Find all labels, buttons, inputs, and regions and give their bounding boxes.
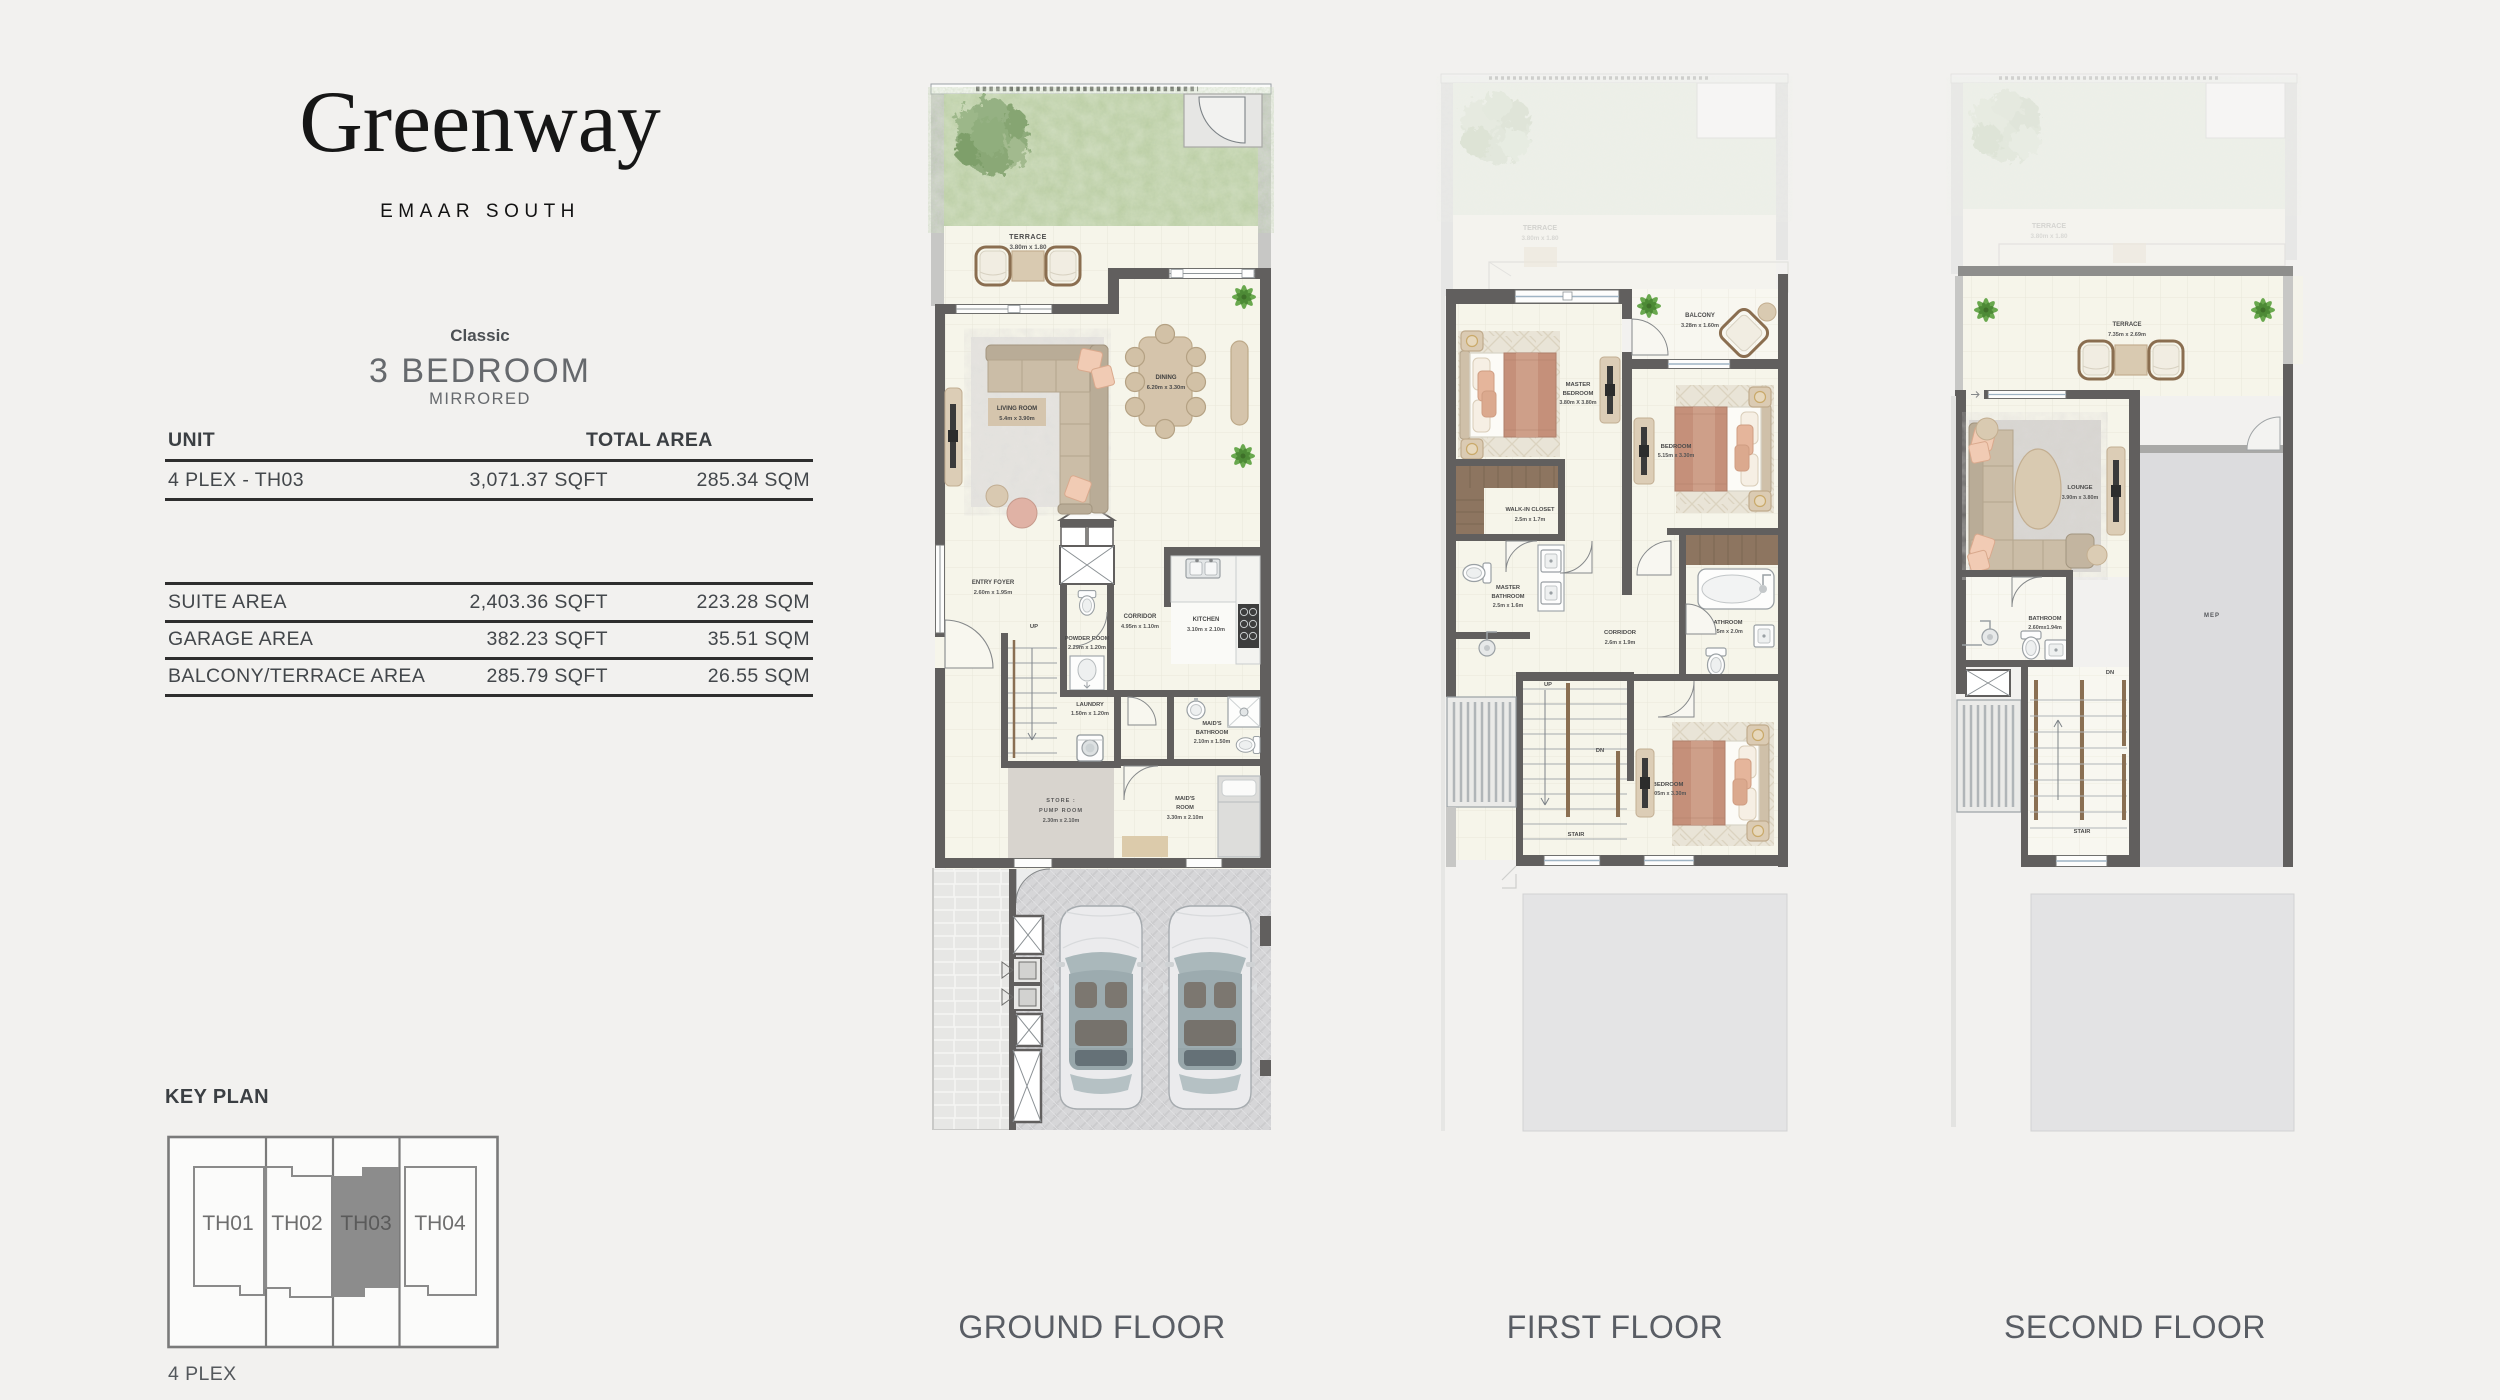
svg-text:STORE :: STORE : <box>1046 798 1076 804</box>
svg-text:3.28m x 1.60m: 3.28m x 1.60m <box>1681 323 1719 329</box>
svg-text:DINING: DINING <box>1156 375 1177 381</box>
svg-text:3.90m x 3.80m: 3.90m x 3.80m <box>2062 495 2099 501</box>
svg-text:CORRIDOR: CORRIDOR <box>1604 630 1637 636</box>
svg-text:TH01: TH01 <box>202 1212 253 1235</box>
svg-text:ROOM: ROOM <box>1176 805 1194 811</box>
svg-text:TERRACE: TERRACE <box>1523 224 1558 232</box>
svg-text:BATHROOM: BATHROOM <box>2028 616 2061 622</box>
svg-text:3.30m x 2.10m: 3.30m x 2.10m <box>1167 815 1204 821</box>
svg-text:STAIR: STAIR <box>2074 829 2091 835</box>
svg-text:MAID'S: MAID'S <box>1202 721 1222 727</box>
svg-text:BATHROOM: BATHROOM <box>1491 594 1524 600</box>
svg-text:BATHROOM: BATHROOM <box>1196 730 1229 736</box>
svg-text:MEP: MEP <box>2204 613 2220 619</box>
svg-text:TERRACE: TERRACE <box>2112 322 2141 328</box>
svg-text:POWDER ROOM: POWDER ROOM <box>1065 636 1110 642</box>
svg-text:BALCONY: BALCONY <box>1685 313 1715 319</box>
svg-text:1.50m x 1.20m: 1.50m x 1.20m <box>1071 711 1109 717</box>
svg-text:DN: DN <box>1596 748 1604 754</box>
svg-text:BEDROOM: BEDROOM <box>1661 444 1692 450</box>
svg-text:BEDROOM: BEDROOM <box>1653 782 1684 788</box>
svg-text:TERRACE: TERRACE <box>1009 233 1047 241</box>
svg-text:2.6m x 1.9m: 2.6m x 1.9m <box>1605 640 1636 646</box>
svg-text:UP: UP <box>1544 682 1552 688</box>
svg-text:3.80m x 1.80: 3.80m x 1.80 <box>1521 235 1559 242</box>
svg-text:2.5m x 1.7m: 2.5m x 1.7m <box>1515 517 1546 523</box>
svg-text:MAID'S: MAID'S <box>1175 796 1195 802</box>
svg-text:KITCHEN: KITCHEN <box>1193 617 1220 623</box>
svg-text:3.80m x 1.80: 3.80m x 1.80 <box>2030 233 2068 240</box>
svg-text:2.5m x 1.6m: 2.5m x 1.6m <box>1493 603 1524 609</box>
svg-text:PUMP ROOM: PUMP ROOM <box>1039 808 1083 814</box>
svg-text:2.60m x 1.95m: 2.60m x 1.95m <box>974 590 1013 596</box>
svg-text:CORRIDOR: CORRIDOR <box>1124 614 1157 620</box>
svg-text:2.30m x 2.10m: 2.30m x 2.10m <box>1043 818 1080 824</box>
svg-text:TERRACE: TERRACE <box>2032 222 2067 230</box>
svg-text:5.4m x 3.90m: 5.4m x 3.90m <box>999 416 1034 422</box>
svg-text:UP: UP <box>1030 624 1038 630</box>
svg-text:2.10m x 1.50m: 2.10m x 1.50m <box>1194 739 1231 745</box>
svg-text:TH03: TH03 <box>340 1212 391 1235</box>
svg-text:LAUNDRY: LAUNDRY <box>1076 702 1104 708</box>
svg-text:7.35m x 2.69m: 7.35m x 2.69m <box>2108 332 2146 338</box>
svg-text:4.95m x 1.10m: 4.95m x 1.10m <box>1121 624 1159 630</box>
svg-text:BEDROOM: BEDROOM <box>1563 391 1594 397</box>
svg-text:MASTER: MASTER <box>1566 382 1592 388</box>
svg-text:4.05m x 3.30m: 4.05m x 3.30m <box>1650 791 1687 797</box>
svg-text:DN: DN <box>2106 670 2114 676</box>
svg-text:3.80m X 3.80m: 3.80m X 3.80m <box>1559 400 1596 406</box>
svg-text:MASTER: MASTER <box>1496 585 1520 591</box>
svg-text:TH02: TH02 <box>271 1212 322 1235</box>
svg-text:6.20m x 3.30m: 6.20m x 3.30m <box>1147 385 1186 391</box>
svg-text:LOUNGE: LOUNGE <box>2067 485 2092 491</box>
svg-text:3.10m x 2.10m: 3.10m x 2.10m <box>1187 627 1225 633</box>
svg-text:STAIR: STAIR <box>1568 832 1585 838</box>
svg-text:5.15m x 3.30m: 5.15m x 3.30m <box>1658 453 1695 459</box>
svg-text:3.80m x 1.80: 3.80m x 1.80 <box>1009 244 1047 251</box>
svg-text:WALK-IN CLOSET: WALK-IN CLOSET <box>1506 507 1555 513</box>
svg-text:TH04: TH04 <box>414 1212 466 1235</box>
svg-text:2.60mx1.94m: 2.60mx1.94m <box>2028 625 2062 631</box>
svg-text:LIVING ROOM: LIVING ROOM <box>997 406 1037 412</box>
svg-text:ENTRY FOYER: ENTRY FOYER <box>972 580 1015 586</box>
